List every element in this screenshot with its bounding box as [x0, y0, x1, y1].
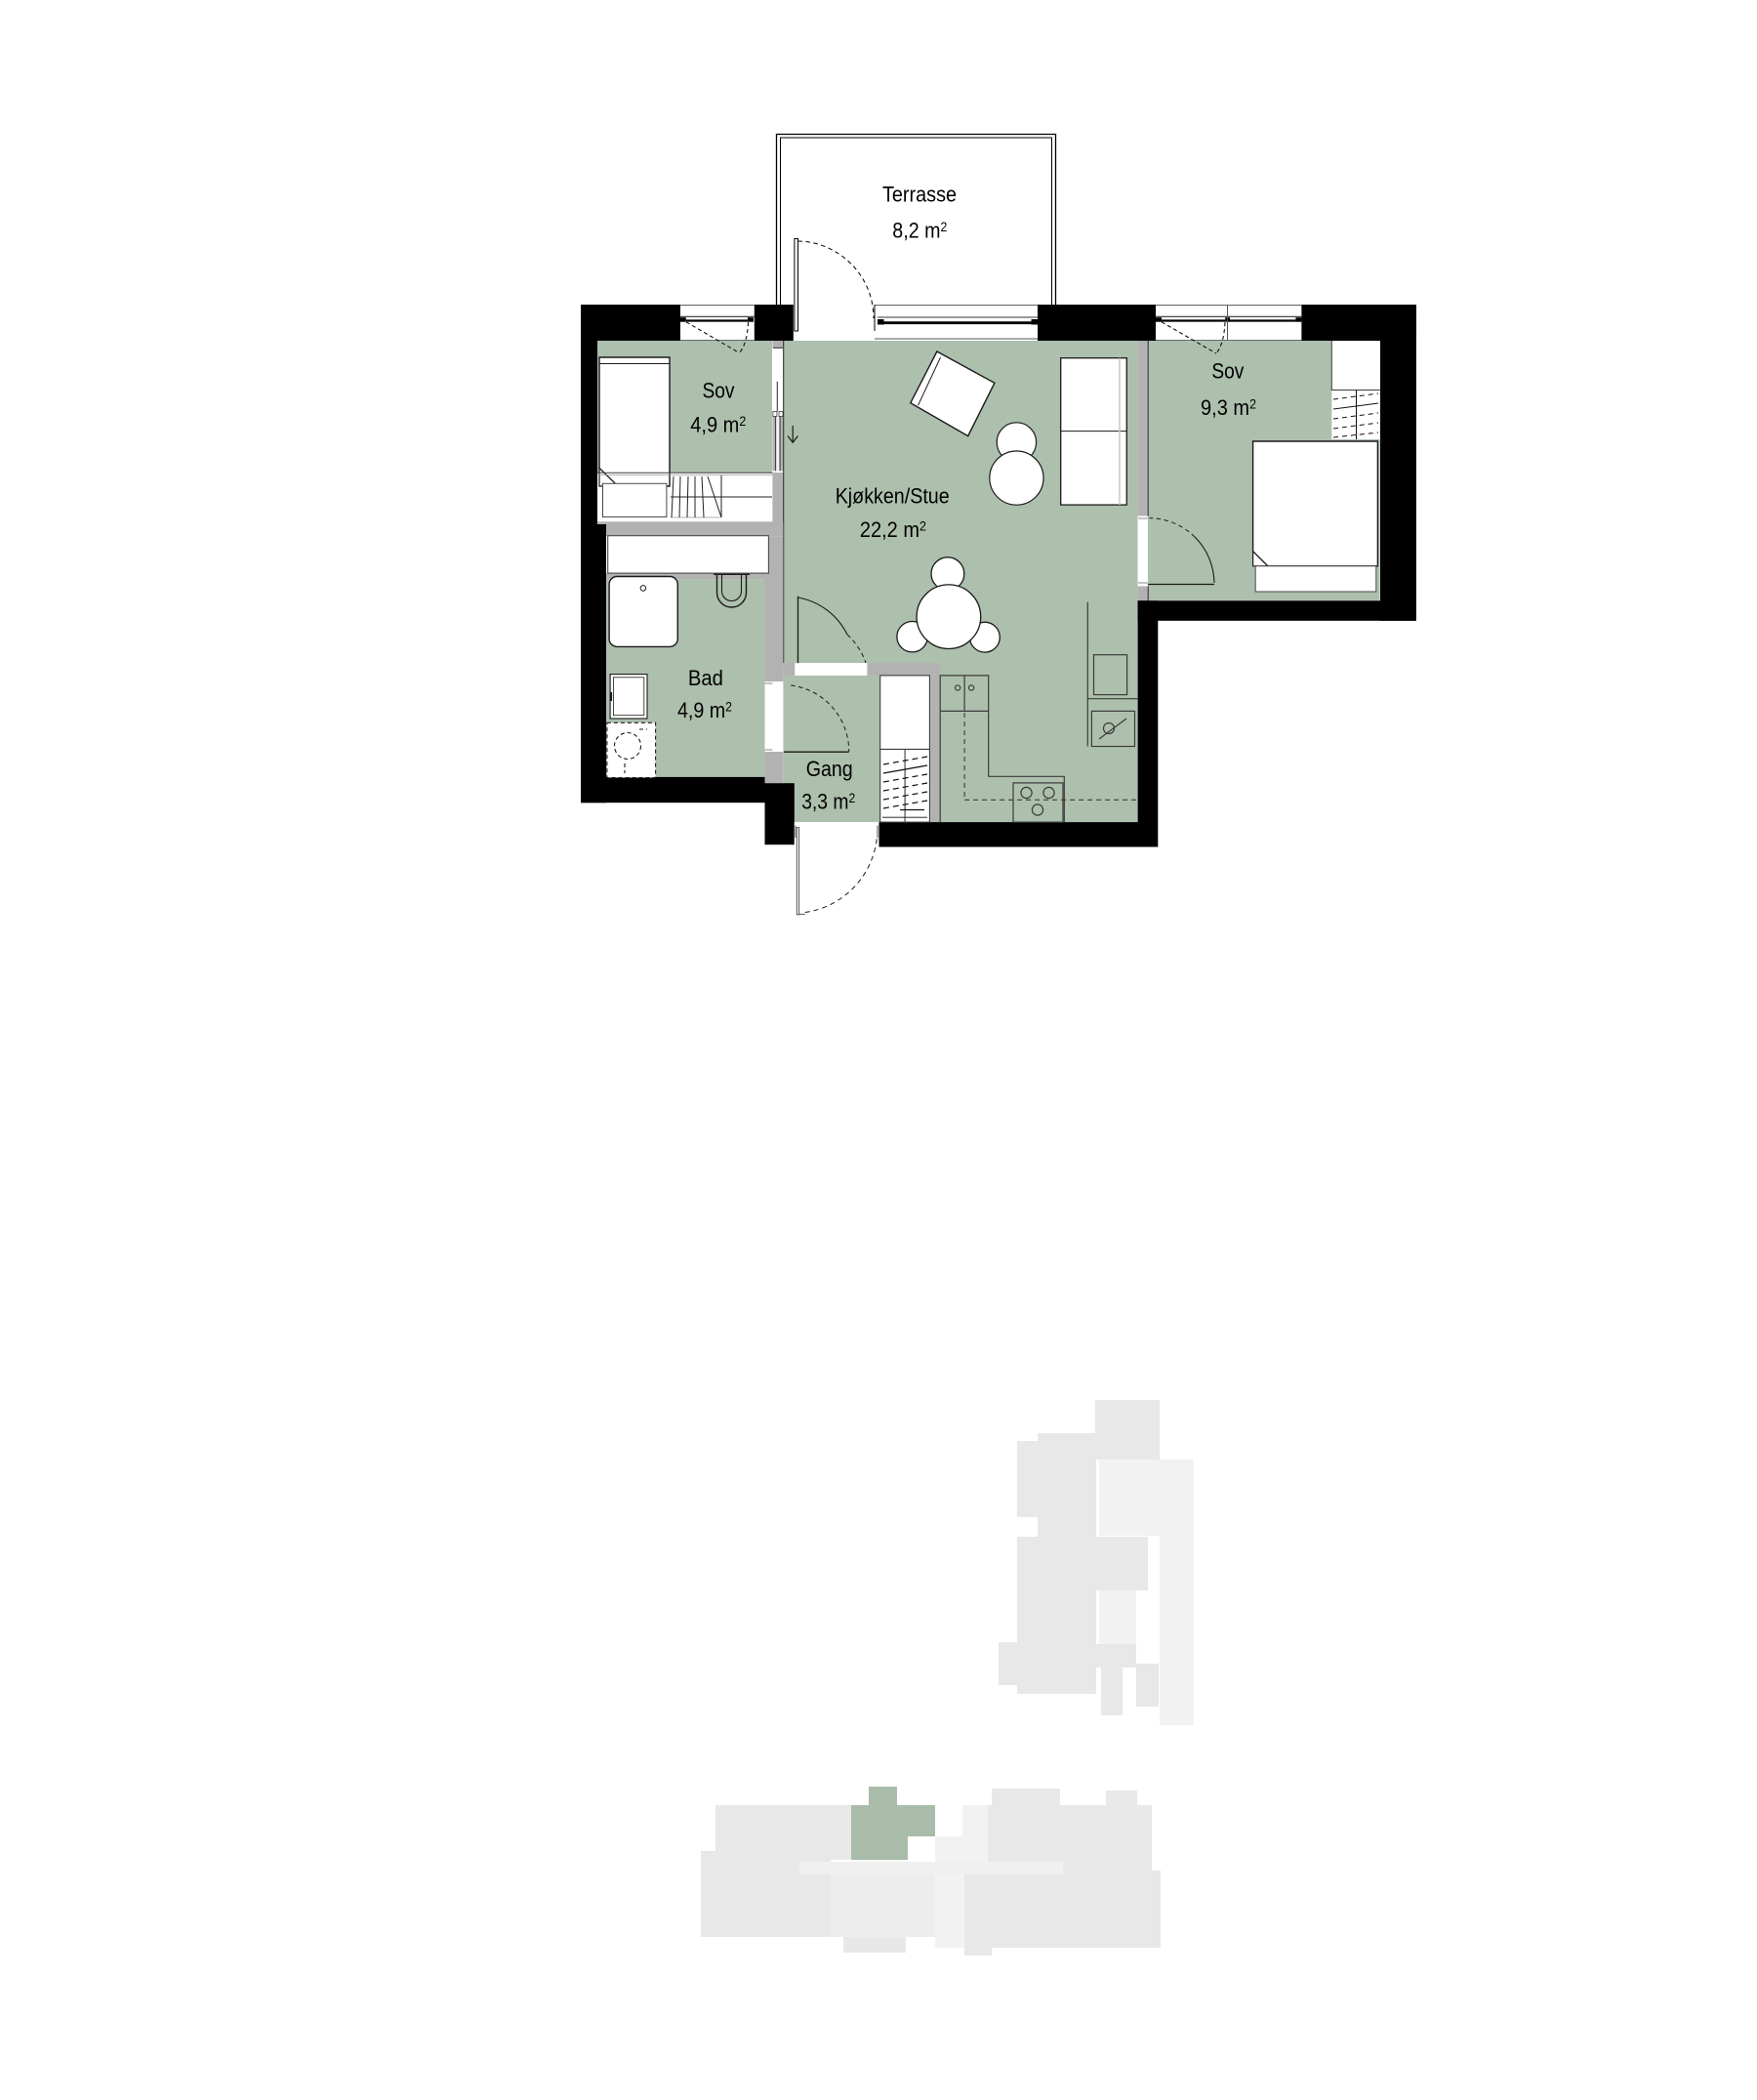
svg-text:Kjøkken/Stue: Kjøkken/Stue — [836, 483, 950, 508]
svg-text:3,3 m2: 3,3 m2 — [801, 790, 855, 814]
svg-text:8,2 m2: 8,2 m2 — [892, 218, 947, 242]
svg-text:9,3 m2: 9,3 m2 — [1201, 395, 1256, 420]
svg-text:4,9 m2: 4,9 m2 — [677, 698, 732, 722]
svg-text:4,9 m2: 4,9 m2 — [690, 413, 746, 437]
svg-text:22,2 m2: 22,2 m2 — [860, 517, 926, 542]
svg-text:Gang: Gang — [806, 757, 853, 781]
svg-text:Bad: Bad — [688, 666, 723, 690]
svg-text:Terrasse: Terrasse — [882, 182, 957, 206]
svg-text:Sov: Sov — [1211, 358, 1245, 383]
svg-text:Sov: Sov — [703, 379, 736, 403]
